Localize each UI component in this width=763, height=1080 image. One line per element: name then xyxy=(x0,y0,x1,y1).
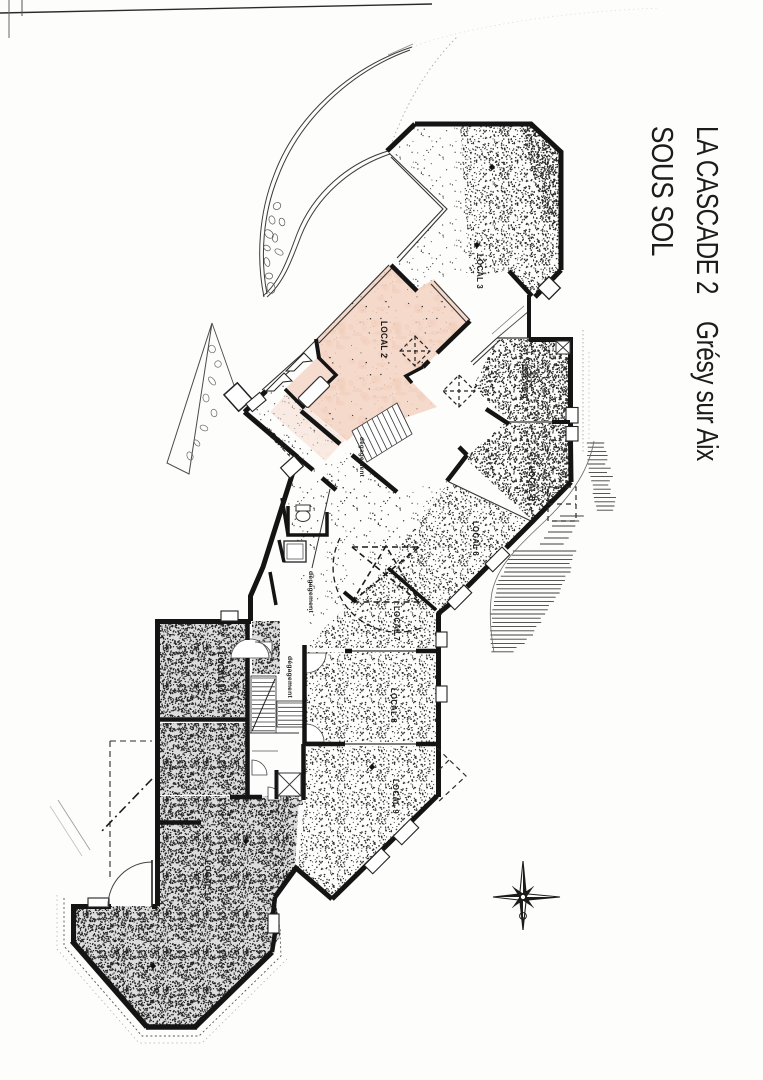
svg-text:Grésy sur Aix: Grésy sur Aix xyxy=(690,321,725,462)
svg-text:LA CASCADE 2: LA CASCADE 2 xyxy=(690,126,725,294)
svg-text:dégagement: dégagement xyxy=(358,437,365,478)
svg-text:LOCAL 10: LOCAL 10 xyxy=(203,860,213,901)
svg-text:dégagement: dégagement xyxy=(307,571,314,614)
svg-text:LOCAL 3: LOCAL 3 xyxy=(475,254,485,289)
svg-text:dégagement: dégagement xyxy=(286,656,293,699)
svg-text:LOCAL 9: LOCAL 9 xyxy=(391,779,401,814)
svg-text:LOCAL 4: LOCAL 4 xyxy=(520,364,530,399)
svg-text:LOCAL 6: LOCAL 6 xyxy=(471,521,481,556)
svg-text:LOCAL 11: LOCAL 11 xyxy=(216,652,226,693)
svg-text:LOCAL 7: LOCAL 7 xyxy=(392,606,402,641)
svg-text:LOCAL 5: LOCAL 5 xyxy=(527,466,537,501)
svg-text:LOCAL 8: LOCAL 8 xyxy=(389,688,399,723)
svg-text:LOCAL 2: LOCAL 2 xyxy=(379,321,389,358)
svg-text:SOUS SOL: SOUS SOL xyxy=(645,126,680,256)
